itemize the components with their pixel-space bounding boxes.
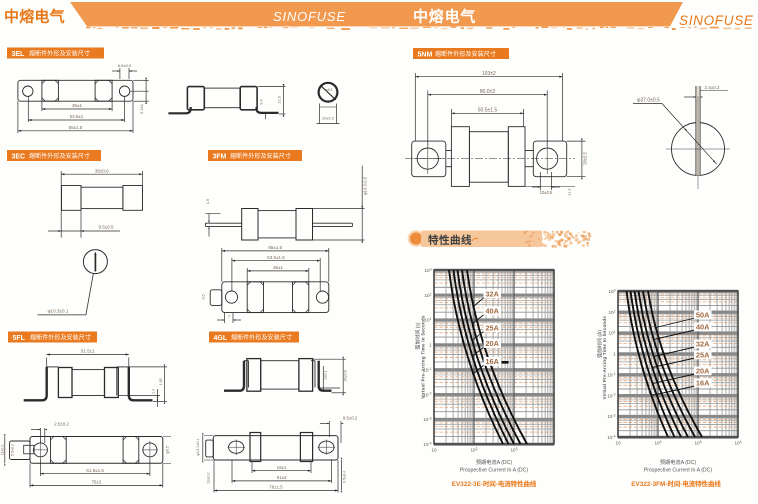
svg-text:61±2: 61±2 [277,475,287,480]
svg-text:中熔电气: 中熔电气 [413,8,476,26]
svg-text:6.5±0.4: 6.5±0.4 [342,471,346,483]
svg-text:1.4: 1.4 [152,389,156,394]
svg-text:40A: 40A [696,323,710,332]
svg-text:EV322-3FM-时间-电流特性曲线: EV322-3FM-时间-电流特性曲线 [631,479,721,488]
svg-text:5.5±0.2: 5.5±0.2 [11,444,15,456]
svg-text:9.5±0.2: 9.5±0.2 [343,416,358,421]
svg-text:53.5±1: 53.5±1 [70,114,84,119]
svg-text:103±2: 103±2 [482,71,496,77]
svg-text:16A: 16A [485,357,499,366]
svg-text:EV322-3E-时间-电流特性曲线: EV322-3E-时间-电流特性曲线 [452,479,537,488]
svg-text:10±0.2: 10±0.2 [322,116,335,121]
svg-text:103: 103 [424,267,431,273]
svg-text:9.4: 9.4 [260,99,264,104]
svg-text:预期电流A (DC): 预期电流A (DC) [660,458,697,466]
svg-text:中熔电气: 中熔电气 [4,8,65,26]
svg-text:12±0.2: 12±0.2 [206,473,210,484]
svg-text:3EL: 3EL [12,51,26,58]
svg-text:102: 102 [654,440,661,446]
svg-text:6.5±0.5: 6.5±0.5 [118,63,132,68]
svg-text:104: 104 [734,440,741,446]
svg-text:11.2: 11.2 [568,188,572,195]
svg-text:9.5±0.5: 9.5±0.5 [99,225,114,230]
svg-text:101: 101 [424,317,431,323]
svg-text:7: 7 [228,314,231,319]
svg-text:80.0±2: 80.0±2 [480,89,495,95]
svg-text:11±0.2: 11±0.2 [0,445,4,456]
svg-text:32A: 32A [696,340,710,349]
svg-text:10: 10 [615,441,621,446]
svg-text:10: 10 [431,448,437,453]
svg-text:Prospective Current In A (DC): Prospective Current In A (DC) [460,468,529,474]
svg-text:76±1.5: 76±1.5 [269,485,283,490]
svg-text:25A: 25A [696,351,710,360]
svg-text:3EC: 3EC [12,153,26,160]
svg-text:熔断件外形及安装尺寸: 熔断件外形及安装尺寸 [30,334,91,342]
svg-text:61.9±1.5: 61.9±1.5 [86,468,104,473]
svg-text:SINOFUSE: SINOFUSE [679,13,754,28]
svg-text:φ6.3: φ6.3 [326,88,333,92]
svg-text:Virtual Pre-Arcing Time In Sec: Virtual Pre-Arcing Time In Seconds [602,316,607,400]
svg-text:2±0.1: 2±0.1 [324,371,328,380]
svg-text:SINOFUSE: SINOFUSE [273,9,346,24]
svg-text:φ13.1±0.1: φ13.1±0.1 [196,438,200,455]
svg-text:25A: 25A [485,323,499,332]
svg-text:5.2±1: 5.2±1 [139,103,144,114]
svg-text:熔断件外形及安装尺寸: 熔断件外形及安装尺寸 [230,152,291,160]
svg-text:65±1.5: 65±1.5 [69,125,83,130]
svg-text:50.5±1.5: 50.5±1.5 [478,108,498,114]
svg-text:28±0.5: 28±0.5 [582,151,587,164]
svg-text:102: 102 [470,447,477,453]
svg-text:36±1: 36±1 [72,103,82,108]
svg-text:预期电流A (DC): 预期电流A (DC) [476,458,513,466]
svg-text:15±0.5: 15±0.5 [344,370,348,382]
svg-text:16±1: 16±1 [277,465,287,470]
svg-text:10-4: 10-4 [423,441,431,447]
svg-text:10±0.5: 10±0.5 [540,190,553,195]
svg-text:12.3: 12.3 [276,95,281,104]
svg-text:熔断件外形及安装尺寸: 熔断件外形及安装尺寸 [231,334,292,342]
svg-text:53.5±1.5: 53.5±1.5 [267,255,285,260]
svg-text:36±1: 36±1 [273,265,283,270]
svg-text:103: 103 [694,440,701,446]
svg-text:1.95: 1.95 [159,379,163,386]
svg-text:熔断件外形及安装尺寸: 熔断件外形及安装尺寸 [435,50,496,58]
svg-text:3.5: 3.5 [202,294,206,299]
svg-text:40A: 40A [485,307,499,316]
svg-text:φ10.3±0.1: φ10.3±0.1 [48,309,69,314]
svg-text:10-3: 10-3 [607,414,615,420]
svg-text:65±1.5: 65±1.5 [268,245,282,250]
svg-text:1: 1 [613,352,616,357]
svg-text:102: 102 [424,292,431,298]
svg-text:75±2: 75±2 [91,480,101,485]
svg-text:10-1: 10-1 [607,372,615,378]
svg-text:Virtual Pre-Arcing Time In Sec: Virtual Pre-Arcing Time In Seconds [420,315,425,399]
svg-text:2.5±0.2: 2.5±0.2 [54,422,69,427]
svg-text:1: 1 [429,343,432,348]
svg-text:10-4: 10-4 [607,434,615,440]
svg-text:φ14.3-0.5: φ14.3-0.5 [363,176,368,195]
svg-text:熔断件外形及安装尺寸: 熔断件外形及安装尺寸 [29,50,90,58]
svg-text:20A: 20A [696,367,710,376]
svg-text:50A: 50A [696,311,710,320]
svg-text:5NM: 5NM [418,51,433,58]
svg-text:20A: 20A [485,339,499,348]
svg-text:2.4±0.2: 2.4±0.2 [705,85,720,90]
svg-text:38±0.6: 38±0.6 [95,168,109,173]
svg-text:103: 103 [608,288,615,294]
svg-text:1.6: 1.6 [205,198,210,204]
svg-text:32A: 32A [485,290,499,299]
svg-text:3FM: 3FM [213,153,227,160]
svg-text:熔断件外形及安装尺寸: 熔断件外形及安装尺寸 [29,152,90,160]
svg-text:103: 103 [510,447,517,453]
svg-text:10-3: 10-3 [423,417,431,423]
svg-text:φ6.5: φ6.5 [166,446,170,454]
svg-text:4GL: 4GL [214,335,228,342]
svg-text:101: 101 [608,330,615,336]
svg-text:102: 102 [608,309,615,315]
svg-text:特性曲线: 特性曲线 [428,234,472,247]
svg-text:16A: 16A [696,379,710,388]
svg-text:φ37.0±0.5: φ37.0±0.5 [637,98,660,104]
svg-text:5FL: 5FL [13,335,26,342]
svg-text:10-2: 10-2 [607,393,615,399]
svg-text:51.5±1: 51.5±1 [81,349,95,354]
svg-text:Prospective Current In A (DC): Prospective Current In A (DC) [644,468,713,474]
